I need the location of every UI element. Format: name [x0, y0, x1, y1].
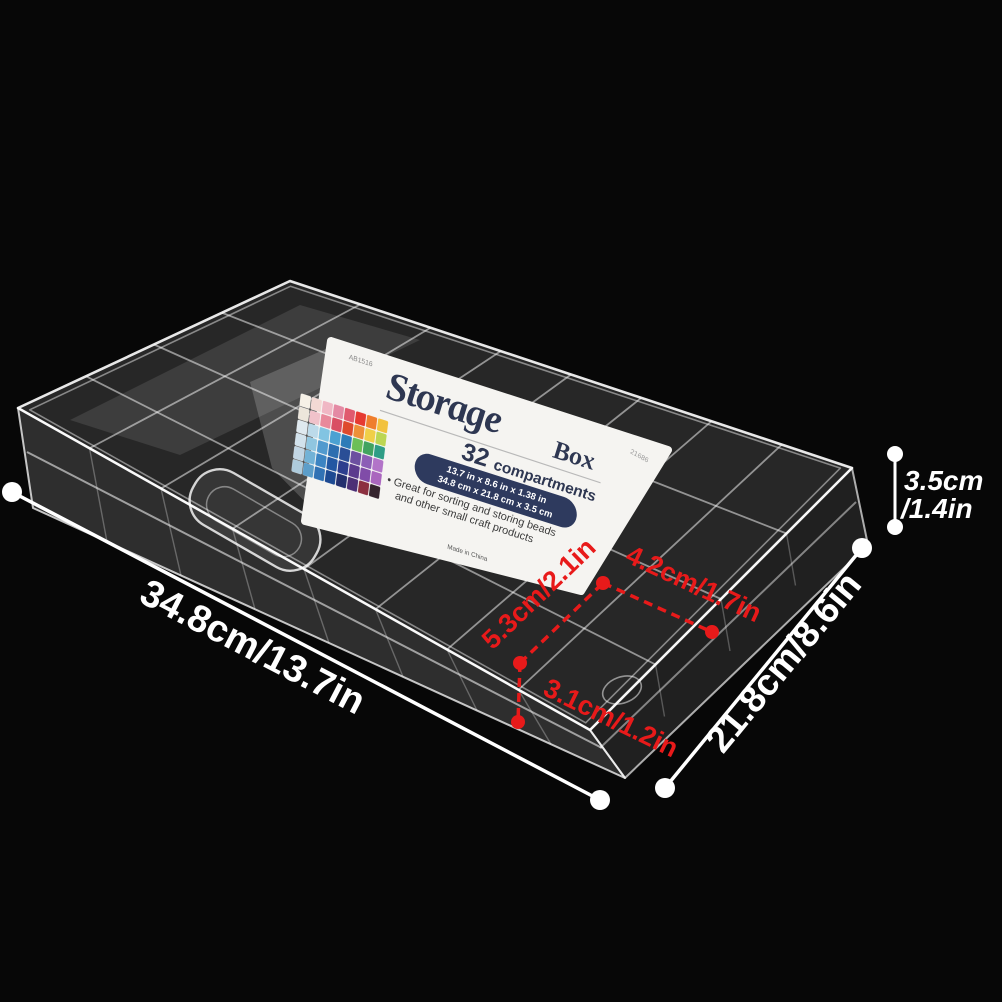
scene: AB1516 21686 Storage Box 32 compartments… [0, 0, 1002, 1002]
dimension-dot [590, 790, 610, 810]
red-dot [596, 576, 610, 590]
red-dot [511, 715, 525, 729]
dimension-dot [655, 778, 675, 798]
product-photo-stage: AB1516 21686 Storage Box 32 compartments… [0, 0, 1002, 1002]
dimension-dot [2, 482, 22, 502]
dimension-height: 3.5cm /1.4in [887, 446, 983, 535]
red-dot [705, 625, 719, 639]
dimension-label-height-cm: 3.5cm [904, 465, 983, 496]
red-dot [513, 656, 527, 670]
dimension-dot [852, 538, 872, 558]
dimension-dot [887, 446, 903, 462]
dimension-label-height-in: /1.4in [899, 493, 973, 524]
